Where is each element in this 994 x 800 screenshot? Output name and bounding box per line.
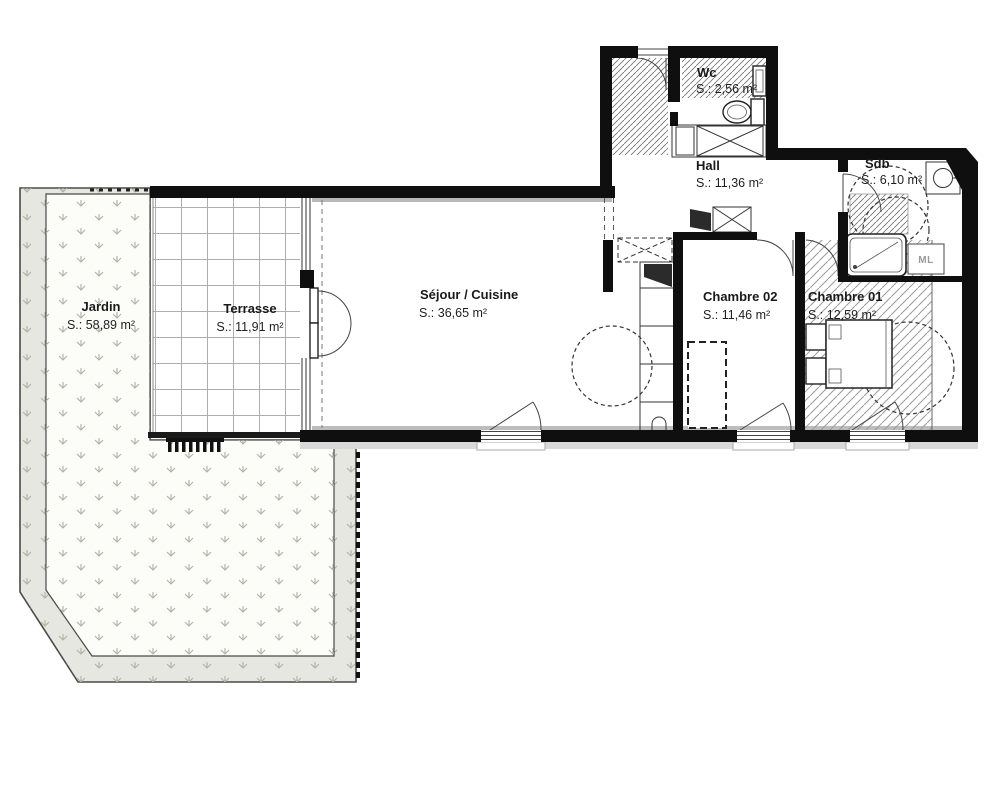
- terrasse-bottom-edge: [148, 432, 305, 438]
- chambre-02-garden-door: [740, 403, 791, 430]
- hall-area-label: S.: 11,36 m²: [696, 176, 763, 190]
- hall-closet: [672, 125, 766, 157]
- wc-label: Wc: [697, 65, 717, 80]
- entrance-door-opening: [638, 46, 668, 58]
- chambre-01-label: Chambre 01: [808, 289, 882, 304]
- appliance-dashed-box: [618, 238, 672, 262]
- wardrobe-dashed: [688, 342, 726, 428]
- window-chambre-01: [850, 430, 905, 442]
- sejour-label: Séjour / Cuisine: [420, 287, 518, 302]
- bathtub: [846, 234, 906, 276]
- window-sejour: [481, 430, 541, 442]
- chambre-01-area-label: S.: 12,59 m²: [808, 308, 876, 322]
- entry-floor-hatch: [612, 58, 668, 155]
- hall-label: Hall: [696, 158, 720, 173]
- sejour-area-label: S.: 36,65 m²: [419, 306, 487, 320]
- chambre-02-area: [688, 240, 793, 430]
- washing-machine-label: ML: [918, 255, 933, 266]
- sejour-garden-door: [490, 402, 541, 430]
- sdb-area-label: S.: 6,10 m²: [861, 173, 922, 187]
- sejour-area: [302, 198, 675, 440]
- kitchen-counter: [640, 262, 675, 440]
- door-leaf-panel: [644, 264, 672, 287]
- terrasse-area-label: S.: 11,91 m²: [216, 320, 283, 334]
- terrasse-label: Terrasse: [223, 301, 276, 316]
- window-sill: [477, 442, 545, 450]
- toilet-tank: [751, 99, 764, 125]
- chambre-02-area-label: S.: 11,46 m²: [703, 308, 770, 322]
- door-leaf-panel: [690, 209, 711, 231]
- wall-liner-top: [312, 198, 612, 202]
- floor-plan-page: ML: [0, 0, 994, 800]
- window-chambre-02: [737, 430, 790, 442]
- french-door: [310, 288, 351, 358]
- washing-machine: ML: [908, 244, 944, 274]
- jardin-area-label: S.: 58,89 m²: [67, 318, 135, 332]
- floor-plan-svg: ML: [0, 0, 994, 800]
- nightstand: [806, 358, 826, 384]
- chambre-02-label: Chambre 02: [703, 289, 777, 304]
- jardin-label: Jardin: [81, 299, 120, 314]
- window-sill: [846, 442, 909, 450]
- window-sill: [733, 442, 794, 450]
- sdb-label: Sdb: [865, 156, 890, 171]
- entry-vestibule: [612, 58, 668, 155]
- chambre-02-door-swing: [757, 240, 793, 276]
- nightstand: [806, 324, 826, 350]
- glazed-wall: [302, 198, 310, 430]
- wc-area-label: S.: 2,56 m²: [696, 82, 757, 96]
